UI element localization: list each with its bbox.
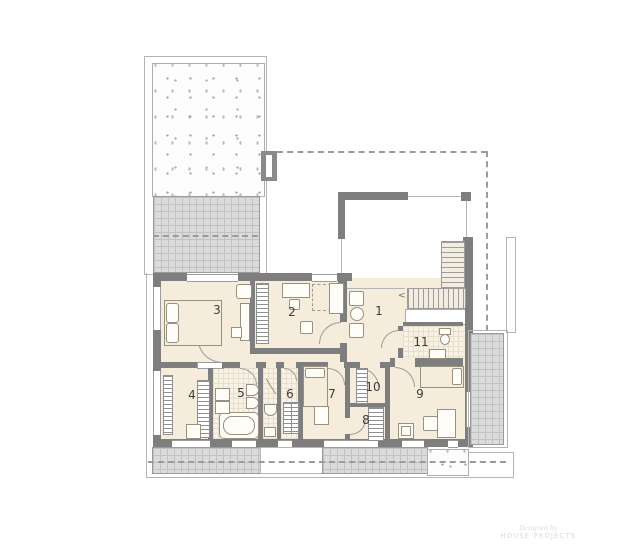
room-label-5: 5: [237, 386, 245, 400]
sink-bath5-a: [246, 384, 259, 396]
stairs-direction-arrow: <: [398, 291, 406, 301]
wall-room3-bottom-b: [222, 362, 240, 368]
watermark-line2: HOUSE PROJECTS: [500, 532, 576, 540]
watermark-line1: Designed by: [500, 525, 576, 532]
pillow-room9: [452, 368, 462, 385]
sink-room11: [429, 349, 446, 359]
pillow-room3-b: [166, 323, 179, 343]
radiator-room4: [163, 375, 173, 435]
site-column-right: [506, 237, 516, 333]
bench-room4: [186, 424, 201, 439]
balcony-dashed-line: [148, 461, 506, 463]
room-label-6: 6: [286, 387, 294, 401]
void-corner-post: [461, 192, 471, 201]
room-label-3: 3: [213, 303, 221, 317]
room-label-11: 11: [413, 335, 428, 349]
wall-room9-left: [385, 362, 390, 439]
room-label-2: 2: [288, 305, 296, 319]
staircase-upper-run: [441, 241, 465, 292]
armchair-hall-a: [349, 291, 364, 306]
desk-room2: [282, 283, 310, 298]
room-label-1: 1: [375, 304, 383, 318]
wall-room11-bottom-a: [390, 358, 395, 367]
terrace-dashed-line: [153, 235, 258, 237]
dashed-boundary-top: [277, 151, 487, 153]
chair-room2-b: [300, 321, 313, 334]
void-rail-right: [466, 201, 467, 237]
desk-room7: [314, 406, 329, 425]
shelf-room8: [368, 407, 384, 441]
wall-wc-right: [277, 368, 281, 439]
sink-wc: [264, 427, 276, 437]
void-rail-left: [341, 239, 342, 273]
hall-edge-line: [345, 288, 405, 289]
pillow-room3-a: [166, 303, 179, 323]
dashed-boundary-right: [486, 151, 488, 331]
shelf-closet6-b: [291, 402, 299, 434]
ext-wall-top-b: [238, 273, 312, 281]
wall-room11-left-b: [398, 348, 403, 358]
window-room3-left: [153, 287, 161, 330]
floor-plan: <: [0, 0, 638, 556]
cabinet-room3: [236, 284, 252, 299]
window-room4-left: [153, 371, 161, 435]
site-line-right-step: [467, 452, 514, 453]
table-room9-inner: [401, 426, 411, 436]
staircase-lower-run: [407, 288, 466, 309]
cabinet-bath5-b: [215, 401, 230, 414]
window-room3-top: [187, 274, 238, 282]
gravel-roof-area: [152, 63, 265, 197]
sink-bath5-b: [246, 397, 259, 409]
void-wall-left: [338, 192, 345, 239]
bathtub-basin: [223, 416, 255, 435]
chimney-flue: [266, 155, 272, 177]
window-bottom-6: [448, 440, 458, 448]
room-label-4: 4: [188, 388, 196, 402]
wall-room2-bottom: [250, 348, 345, 354]
room-label-7: 7: [328, 387, 336, 401]
pillow-room7: [305, 368, 325, 378]
sofa-room2: [329, 283, 344, 314]
room-label-8: 8: [362, 413, 370, 427]
site-line-right: [513, 452, 514, 478]
site-line-left: [146, 273, 147, 478]
wall-room3-bottom-a: [153, 362, 197, 368]
room-label-9: 9: [416, 387, 424, 401]
site-line-bottom: [146, 477, 514, 478]
window-room2-top: [312, 274, 337, 282]
cabinet-bath5-a: [215, 388, 230, 401]
room-label-10: 10: [365, 380, 380, 394]
side-table-room3: [231, 327, 242, 338]
watermark: Designed by HOUSE PROJECTS: [500, 525, 576, 540]
desk-room9: [437, 409, 456, 438]
toilet-wc: [264, 404, 277, 416]
terrace-right: [470, 333, 504, 445]
void-rail-top: [408, 196, 462, 197]
void-wall-top: [338, 192, 408, 200]
wardrobe-room2: [256, 283, 269, 344]
armchair-hall-b: [349, 323, 364, 338]
wall-room7-right-a: [345, 362, 350, 418]
chair-room9: [423, 416, 438, 431]
round-table-hall: [350, 307, 364, 321]
toilet-bowl-room11: [440, 334, 450, 345]
wall-room11-top: [403, 322, 463, 326]
